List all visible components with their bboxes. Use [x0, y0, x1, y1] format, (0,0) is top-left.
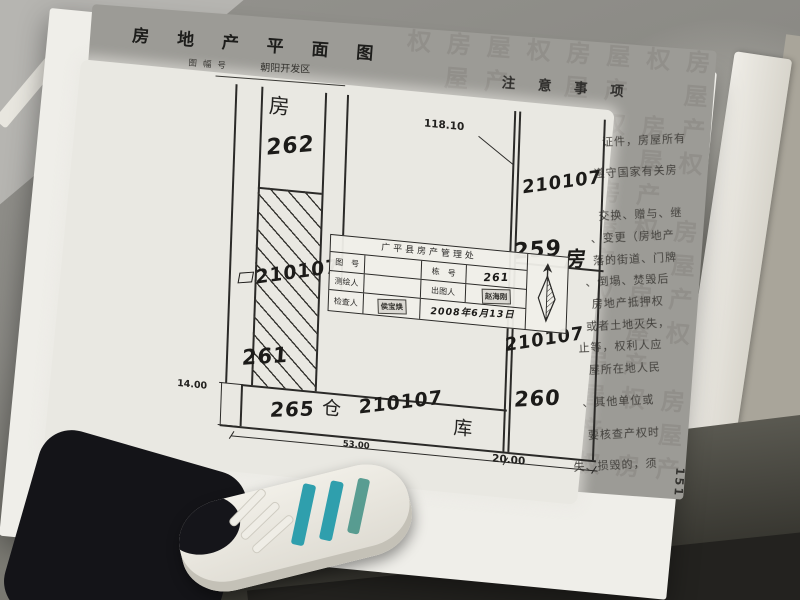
checker-seal: 侯宝焕 [377, 298, 406, 314]
parcel-number-warehouse: 210107 [357, 389, 444, 418]
warehouse-char-left: 仓 [322, 399, 342, 420]
dimension-118: 118.10 [424, 118, 465, 132]
shoe-stripe [291, 483, 317, 546]
room-number-262: 262 [265, 134, 316, 160]
shoe-stripe [319, 480, 344, 541]
room-label: 房 [268, 95, 292, 118]
shoe-stripe [347, 477, 370, 534]
dimension-ext [219, 382, 241, 385]
dimension-20: 20.00 [492, 453, 525, 467]
photo-scene: 房屋产权 房屋产权 房屋产权 房屋产权 房屋产权 房屋产权 房屋产权 房屋产权 … [0, 0, 800, 600]
notes-heading: 注 意 事 项 [501, 71, 633, 101]
stamp-field-label: 测绘人 [329, 271, 364, 292]
note-line: 证件，房屋所有 [602, 130, 687, 150]
dimension-line [231, 435, 597, 471]
stamp-field-label: 检查人 [329, 290, 365, 313]
plan-line [240, 384, 243, 426]
parcel-number-right-top: 210107 [521, 169, 604, 198]
plan-line [225, 84, 237, 383]
sheet-number-value: 朝阳开发区 [260, 64, 310, 76]
stamp-field-value: 侯宝焕 [363, 293, 420, 318]
page-number: 151 [671, 467, 687, 498]
floor-plan: 房 262 210107 261 118.10 210107 259 房 210… [160, 78, 612, 513]
warehouse-char-right: 库 [453, 419, 473, 440]
dimension-14: 14.00 [177, 379, 207, 391]
dimension-line [220, 382, 222, 424]
building-number-value: 261 [483, 271, 510, 282]
dimension-53: 53.00 [343, 440, 370, 451]
plan-bottom-border [220, 424, 596, 462]
room-number-260: 260 [513, 387, 562, 410]
leader-line [478, 136, 514, 166]
north-arrow-cell [525, 254, 568, 333]
plotter-seal: 赵海刚 [481, 288, 510, 304]
north-arrow-icon [532, 260, 562, 327]
stamp-field-label: 图 号 [330, 252, 365, 273]
parcel-box-mark [237, 272, 254, 284]
page-title: 房 地 产 平 面 图 [132, 21, 386, 65]
room-number-265: 265 [269, 398, 315, 419]
date-value: 2008年6月13日 [431, 307, 516, 320]
room-number-261: 261 [241, 345, 290, 369]
note-line: 交换、赠与、继 [598, 204, 683, 224]
sheet-number-label: 图幅号 [188, 59, 232, 71]
